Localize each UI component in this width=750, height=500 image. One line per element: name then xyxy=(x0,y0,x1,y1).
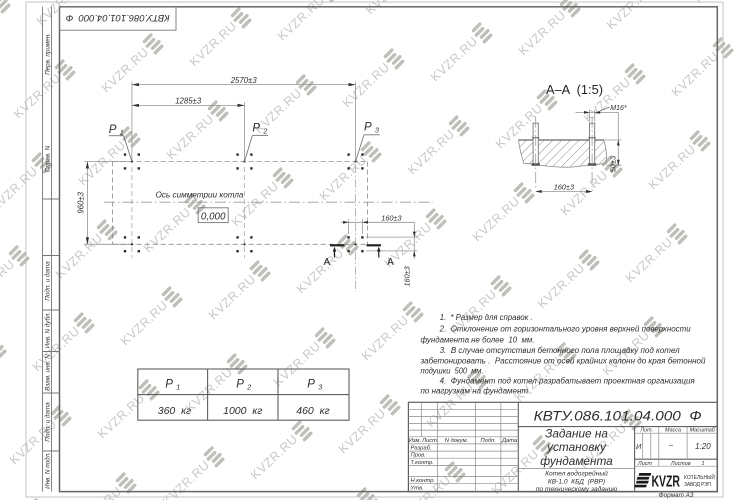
svg-text:Инв. N подл.: Инв. N подл. xyxy=(44,452,52,489)
svg-text:160±3: 160±3 xyxy=(381,213,401,222)
svg-text:Т.контр.: Т.контр. xyxy=(411,460,434,466)
svg-text:Утв.: Утв. xyxy=(410,486,424,492)
svg-text:Дата: Дата xyxy=(501,438,518,444)
svg-text:Инв. N дубл.: Инв. N дубл. xyxy=(44,312,52,348)
svg-text:фундамента: фундамента xyxy=(540,454,613,468)
svg-text:P: P xyxy=(252,123,260,135)
svg-text:КВТУ.086.101.04.000 Ф: КВТУ.086.101.04.000 Ф xyxy=(65,12,169,23)
svg-text:2570±3: 2570±3 xyxy=(230,76,258,85)
svg-text:Масса: Масса xyxy=(665,428,681,434)
svg-text:3: 3 xyxy=(318,384,322,391)
svg-text:Формат А3: Формат А3 xyxy=(659,492,694,499)
svg-text:Н.контр.: Н.контр. xyxy=(411,478,436,484)
svg-text:Масштаб: Масштаб xyxy=(690,428,716,434)
svg-text:N докум.: N докум. xyxy=(445,438,468,444)
svg-text:Справ. N: Справ. N xyxy=(45,145,52,172)
svg-text:подушки 500 мм.: подушки 500 мм. xyxy=(421,366,484,375)
svg-text:1: 1 xyxy=(176,384,180,391)
svg-text:Листов: Листов xyxy=(670,461,691,467)
svg-text:P: P xyxy=(109,124,117,136)
svg-text:1000 кг: 1000 кг xyxy=(223,405,262,417)
svg-text:A: A xyxy=(387,257,394,268)
svg-text:2. Отклонение от горизонтальн: 2. Отклонение от горизонтального уровня … xyxy=(439,325,692,334)
svg-text:2: 2 xyxy=(246,384,251,391)
svg-text:Котел водогрейный: Котел водогрейный xyxy=(545,470,608,478)
svg-text:Пров.: Пров. xyxy=(411,453,426,459)
svg-text:360 кг: 360 кг xyxy=(158,405,192,417)
svg-text:960±3: 960±3 xyxy=(77,191,86,213)
svg-text:A–A (1:5): A–A (1:5) xyxy=(546,82,603,97)
svg-text:1:20: 1:20 xyxy=(695,442,711,451)
svg-text:A: A xyxy=(323,257,330,268)
svg-text:1: 1 xyxy=(702,461,705,467)
svg-text:M16*: M16* xyxy=(610,105,627,112)
svg-text:Подп.: Подп. xyxy=(480,438,495,444)
svg-text:Взам. инв. N: Взам. инв. N xyxy=(45,354,52,391)
svg-text:И: И xyxy=(636,442,642,451)
svg-text:КВ-1,0 КБД (РВР): КВ-1,0 КБД (РВР) xyxy=(548,479,605,486)
svg-text:фундамента не более 10 мм.: фундамента не более 10 мм. xyxy=(421,335,535,344)
svg-text:P: P xyxy=(307,379,315,391)
svg-text:Разраб.: Разраб. xyxy=(411,445,432,451)
svg-text:1. * Размер для справок .: 1. * Размер для справок . xyxy=(440,313,533,322)
svg-text:Лист: Лист xyxy=(637,461,652,467)
svg-text:Ось симметрии котла: Ось симметрии котла xyxy=(156,190,244,200)
svg-text:Изм.: Изм. xyxy=(409,438,421,444)
svg-text:Лит.: Лит. xyxy=(639,428,653,434)
svg-text:Подп. и дата: Подп. и дата xyxy=(44,402,52,442)
svg-text:по нагрузкам на фундамент .: по нагрузкам на фундамент . xyxy=(421,387,533,396)
svg-text:2: 2 xyxy=(262,128,267,135)
svg-text:P: P xyxy=(236,379,244,391)
svg-text:160±3: 160±3 xyxy=(554,182,574,191)
svg-text:установку: установку xyxy=(546,440,607,454)
svg-text:Подп. и дата: Подп. и дата xyxy=(44,261,52,301)
svg-text:0,000: 0,000 xyxy=(201,211,226,222)
svg-text:Лист: Лист xyxy=(421,438,437,444)
svg-text:3. В случае отсутствия бетонн: 3. В случае отсутствия бетонного пола пл… xyxy=(440,346,681,355)
svg-text:50±3: 50±3 xyxy=(608,155,617,173)
svg-text:KVZR: KVZR xyxy=(652,474,681,491)
svg-text:P: P xyxy=(165,379,173,391)
svg-text:460 кг: 460 кг xyxy=(296,405,330,417)
svg-text:1285±3: 1285±3 xyxy=(175,97,202,106)
svg-text:Задание на: Задание на xyxy=(545,427,608,441)
svg-text:4. Фундамент под котел разраб: 4. Фундамент под котел разрабатывает про… xyxy=(440,377,696,386)
svg-text:КВТУ.086.101.04.000 Ф: КВТУ.086.101.04.000 Ф xyxy=(534,407,702,423)
svg-text:ЗАВОД РЭП: ЗАВОД РЭП xyxy=(684,482,711,488)
svg-text:КОТЕЛЬНЫЙ: КОТЕЛЬНЫЙ xyxy=(684,473,715,481)
svg-text:3: 3 xyxy=(375,127,379,134)
svg-text:160±3: 160±3 xyxy=(402,266,411,286)
svg-text:Перв. примен.: Перв. примен. xyxy=(45,33,52,75)
svg-text:по техническому заданию: по техническому заданию xyxy=(536,485,618,493)
svg-text:–: – xyxy=(668,441,674,450)
svg-text:забетонировать . Расстояние о: забетонировать . Расстояние от осей край… xyxy=(419,357,706,366)
svg-text:P: P xyxy=(364,122,372,134)
